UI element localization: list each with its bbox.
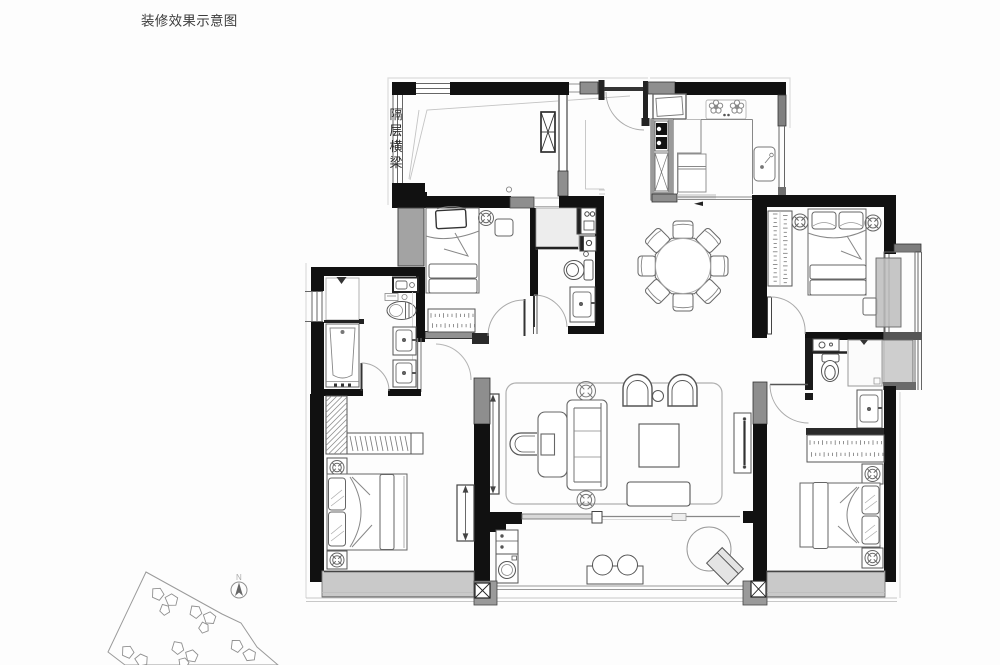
svg-text:装修效果示意图: 装修效果示意图 <box>141 13 238 29</box>
svg-text:隔层横梁: 隔层横梁 <box>390 107 403 170</box>
svg-text:N: N <box>236 573 242 582</box>
